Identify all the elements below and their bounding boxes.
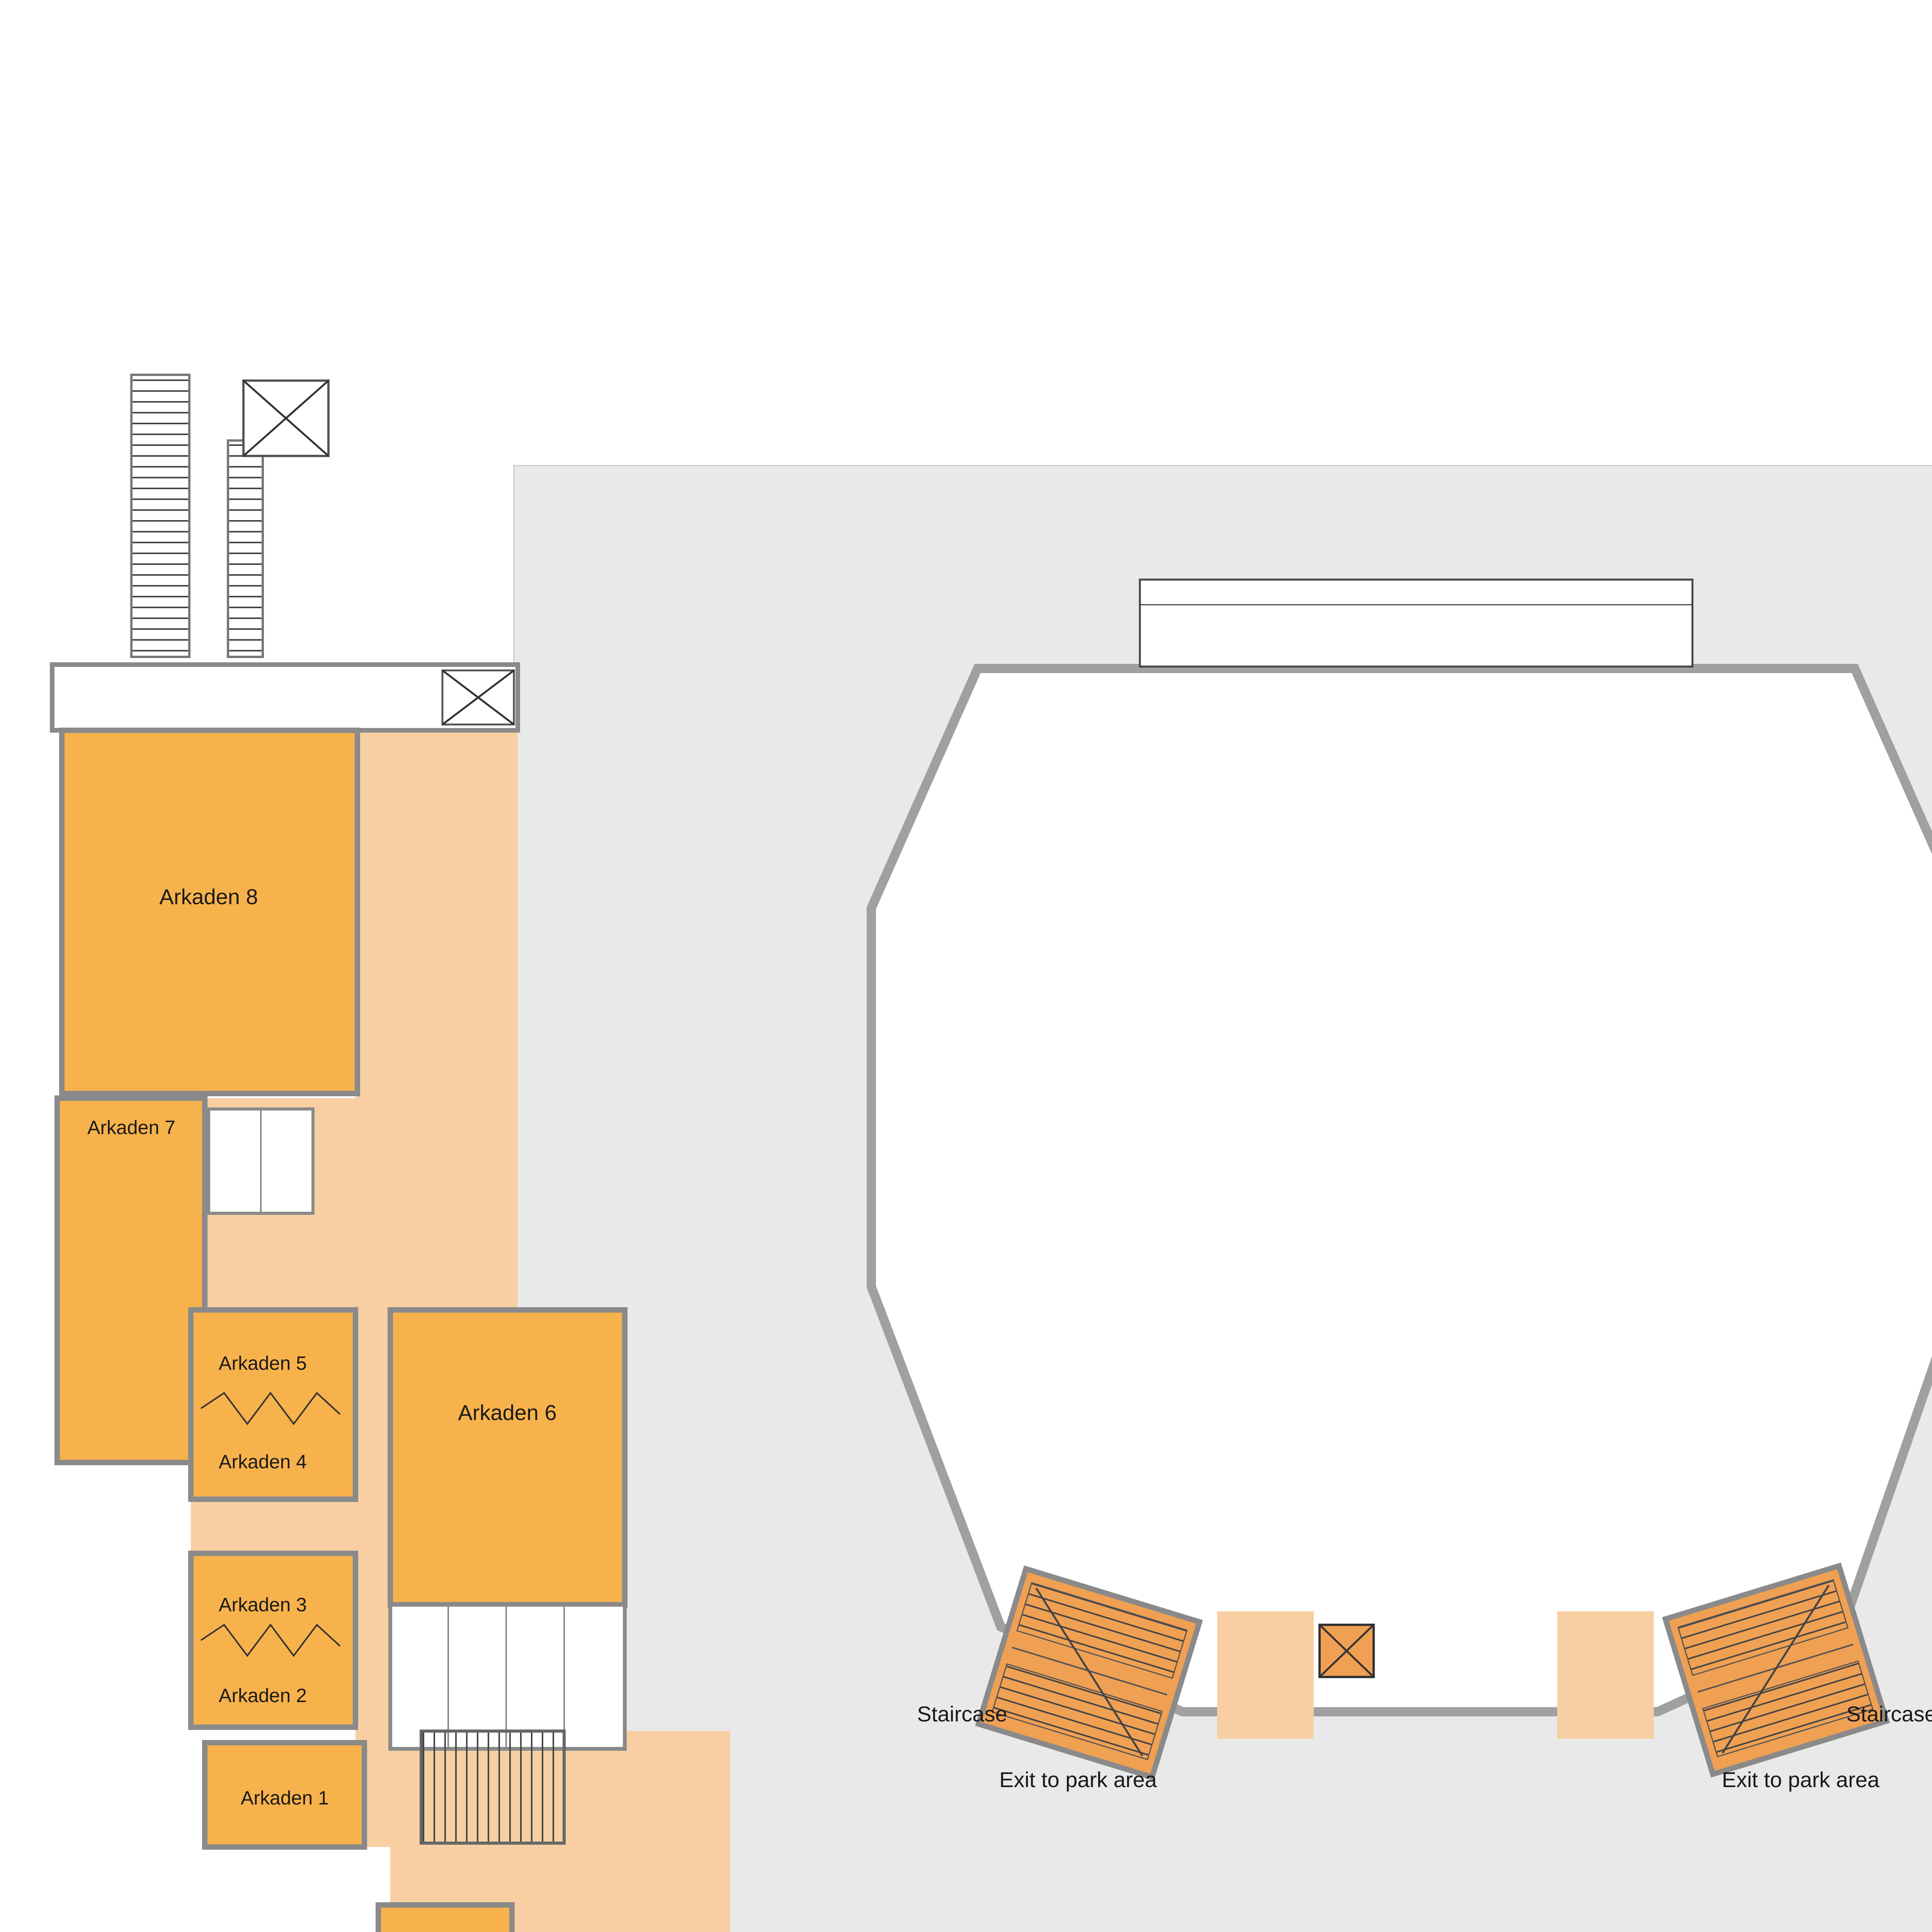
room-arkaden-3-2: Arkaden 3 Arkaden 2 [191,1553,355,1727]
arkaden8-label: Arkaden 8 [159,884,258,909]
stair-room-mid-left [421,1731,564,1843]
arkaden3-label: Arkaden 3 [219,1594,307,1616]
room-arkaden-1: Arkaden 1 [205,1743,364,1847]
central-hall [871,580,1932,1712]
arkaden1-label: Arkaden 1 [241,1787,329,1809]
room-galoppen-10-9: Galoppen 10 Galoppen 9 [378,1905,512,1932]
staircase-left-label: Staircase [917,1702,1007,1726]
exit-park-left-label: Exit to park area [999,1767,1157,1792]
elevator-box-topleft [243,381,328,456]
arkaden7-label: Arkaden 7 [87,1117,175,1138]
room-arkaden-6: Arkaden 6 [390,1310,625,1605]
elevator-box-center [1320,1625,1374,1677]
floorplan-map: Staircase Exit to park area Staircase Ex… [0,0,1932,1932]
room-arkaden-7: Arkaden 7 [57,1098,205,1463]
arkaden6-label: Arkaden 6 [458,1400,556,1425]
exit-park-right-label: Exit to park area [1722,1767,1880,1792]
staircase-right-label: Staircase [1846,1702,1932,1726]
room-arkaden-5-4: Arkaden 5 Arkaden 4 [191,1310,355,1499]
exit-vestibule-right [1557,1611,1654,1739]
room-arkaden-8: Arkaden 8 [62,730,357,1094]
toilet-box-left [209,1109,313,1213]
exit-vestibule-left [1217,1611,1314,1739]
toilets-block-left [390,1605,625,1749]
arkaden5-label: Arkaden 5 [219,1352,307,1374]
arkaden2-label: Arkaden 2 [219,1685,307,1706]
arkaden4-label: Arkaden 4 [219,1451,307,1473]
left-entry-hall [52,665,518,730]
floorplan-svg: Staircase Exit to park area Staircase Ex… [0,0,1932,1932]
stage [1140,580,1692,667]
